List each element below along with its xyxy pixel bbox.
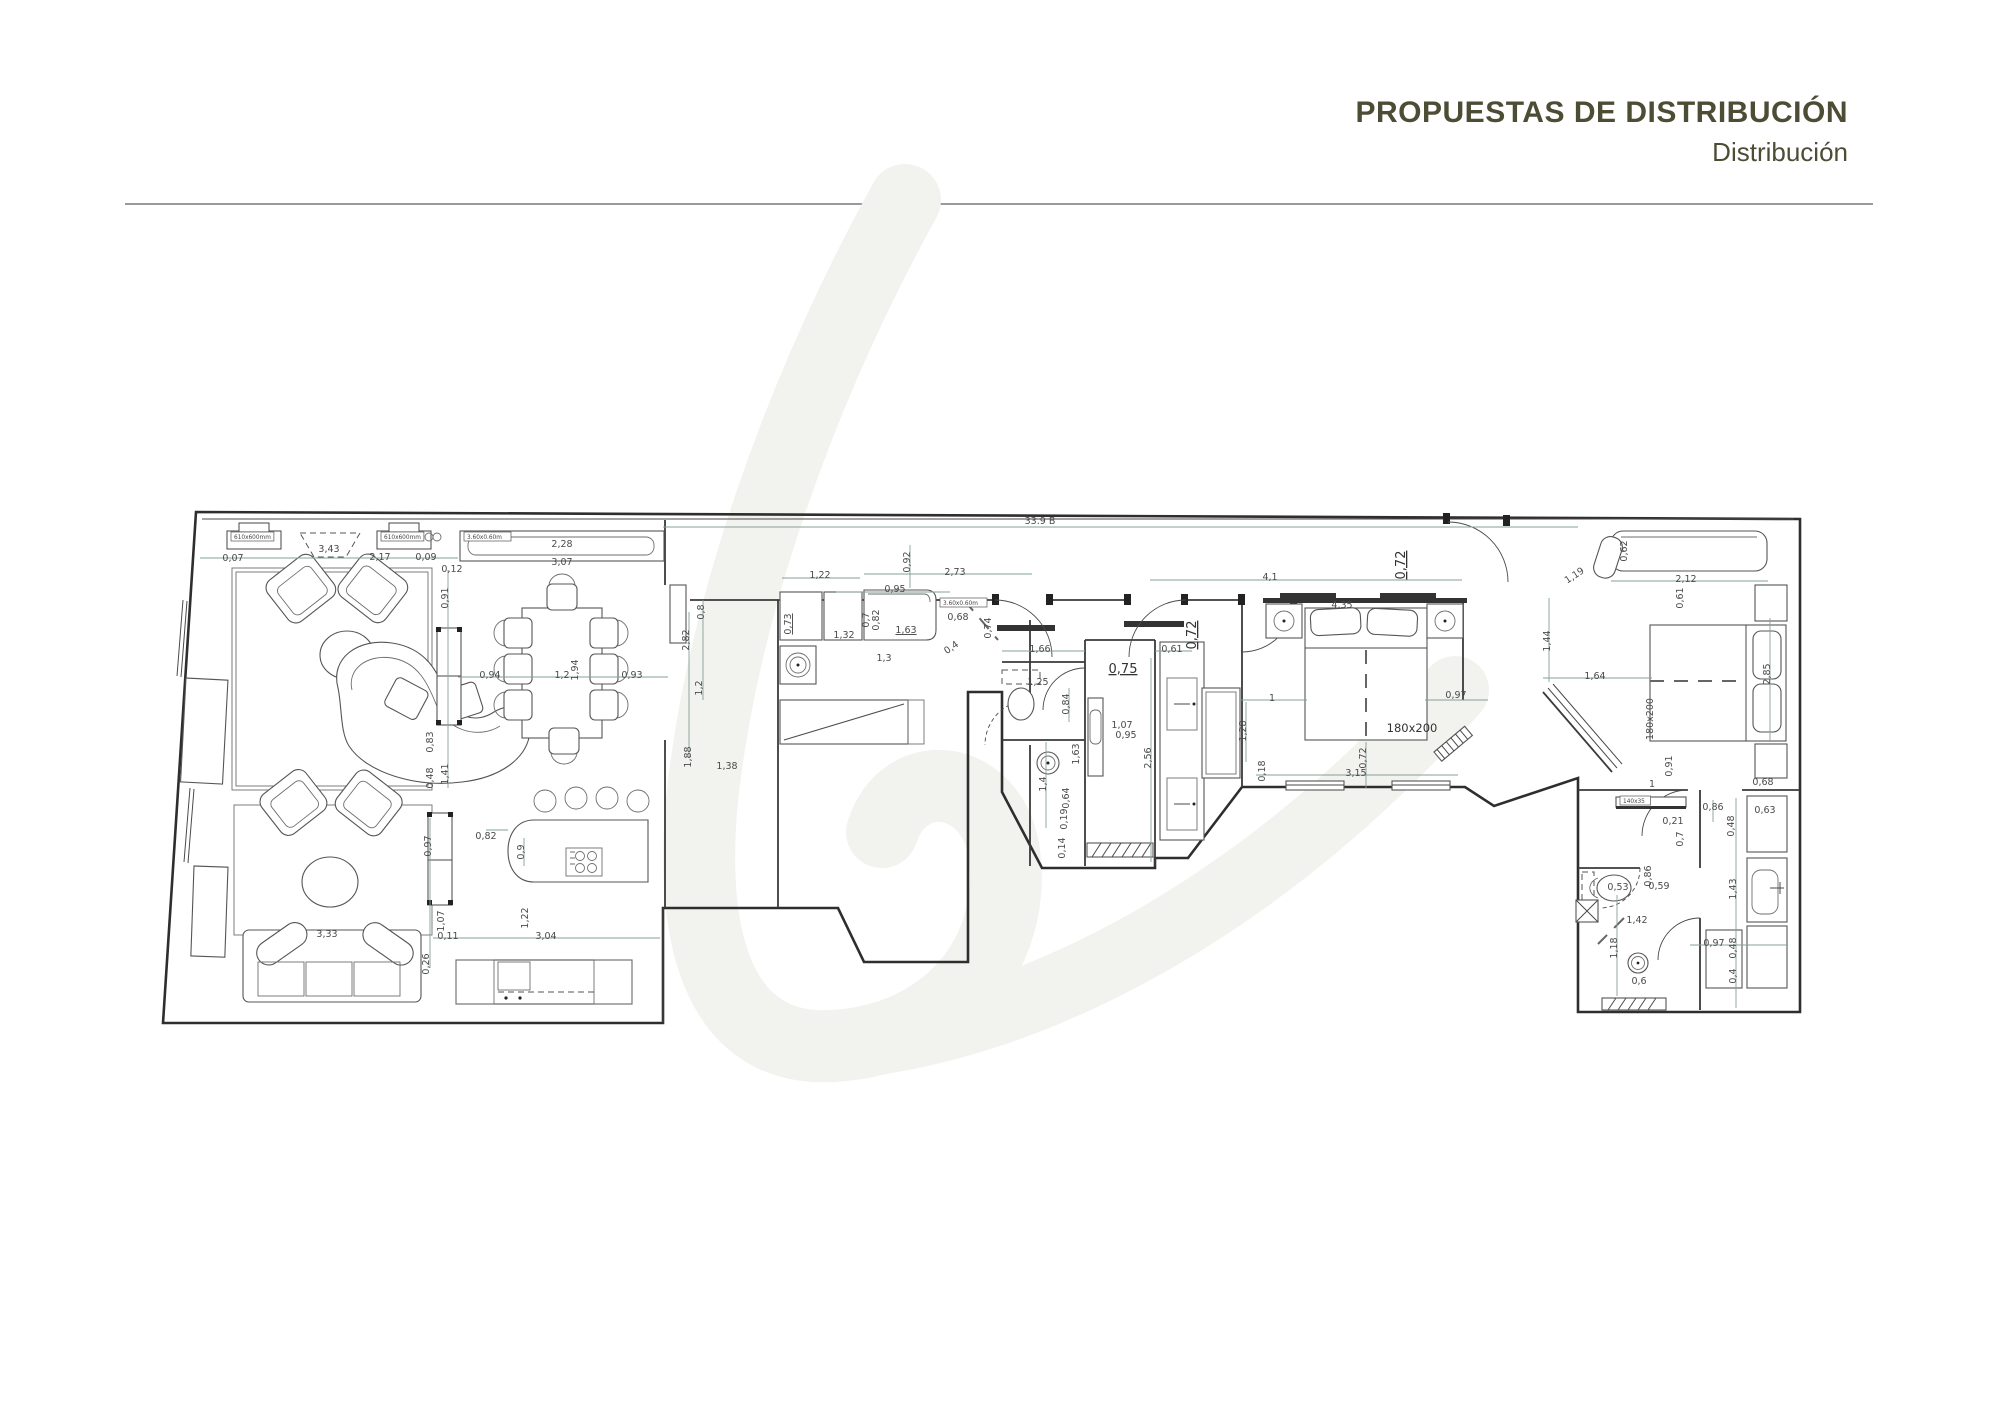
- door-sill: [1602, 998, 1666, 1010]
- dimension-label: 0,63: [1754, 805, 1775, 816]
- headboard-wall: [1263, 598, 1467, 603]
- dimension-label: 1,19: [1563, 566, 1587, 587]
- dimension-label: 0,94: [479, 670, 500, 681]
- tag-label: 3.60x0.60m: [943, 601, 978, 607]
- dimension-label: 1,2: [694, 680, 705, 695]
- armchair: [256, 766, 331, 840]
- dimension-label: 1,66: [1029, 644, 1050, 655]
- dimension-label: 0,95: [884, 584, 905, 595]
- side-cabinet: [181, 678, 228, 784]
- dimension-label: 1,22: [520, 907, 531, 928]
- vanity: [1747, 858, 1787, 922]
- dimension-label: 0,4: [1728, 968, 1739, 983]
- tag-label: 140x35: [1623, 799, 1645, 805]
- dimension-label: 0,12: [441, 564, 462, 575]
- wardrobe: [1755, 585, 1787, 621]
- dimension-label: 0,07: [222, 553, 243, 564]
- wardrobe: [1755, 744, 1787, 778]
- dimension-label: 0,18: [1257, 760, 1268, 781]
- dimension-label: 1,25: [1027, 677, 1048, 688]
- dimension-label: 0,97: [423, 835, 434, 856]
- dimension-label: 0,64: [1061, 787, 1072, 808]
- door-sill: [1087, 843, 1153, 857]
- dimension-label: 1,4: [1038, 776, 1049, 791]
- dimension-label: 0,26: [421, 953, 432, 974]
- dimension-label: 0,84: [1061, 693, 1072, 714]
- dimension-label: 2,12: [1675, 574, 1696, 585]
- tall-cabinet: [1160, 642, 1204, 840]
- dimension-label: 1,94: [570, 659, 581, 680]
- dimension-label: 0,82: [475, 831, 496, 842]
- dimension-label: 0,68: [947, 612, 968, 623]
- dimension-label: 2,85: [1762, 663, 1773, 684]
- dimension-label: 1,2: [554, 670, 569, 681]
- dimension-label: 0,91: [1664, 755, 1675, 776]
- dimension-label: 0,53: [1607, 882, 1628, 893]
- dimension-label: 3,07: [551, 557, 572, 568]
- dimension-label: 0,61: [1675, 587, 1686, 608]
- dimension-label: 0,73: [783, 613, 794, 634]
- dimension-label: 1,63: [1071, 743, 1082, 764]
- cabinet: [1747, 926, 1787, 988]
- dimension-label: 0,92: [902, 551, 913, 572]
- dimension-label: 1,42: [1626, 915, 1647, 926]
- tag-label: 3.60x0.60m: [467, 535, 502, 541]
- kitchen-island: [508, 787, 649, 882]
- dimension-label: 0,21: [1662, 816, 1683, 827]
- dimension-label: 0,97: [1703, 938, 1724, 949]
- dimension-label: 2,82: [681, 629, 692, 650]
- dimension-label: 180x200: [1645, 698, 1656, 740]
- dimension-label: 0,4: [942, 639, 961, 657]
- dimension-label: 1: [1269, 693, 1275, 704]
- dimension-label: 1,64: [1584, 671, 1605, 682]
- dimension-label: 2,56: [1143, 747, 1154, 768]
- page: PROPUESTAS DE DISTRIBUCIÓN Distribución: [0, 0, 2000, 1414]
- dimension-label: 0,7: [1675, 831, 1686, 846]
- dimension-label: 0,82: [871, 609, 882, 630]
- dimension-label: 4,1: [1262, 572, 1277, 583]
- stool: [627, 790, 649, 812]
- bedroom-2: [1591, 531, 1787, 778]
- dimension-label: 1,32: [833, 630, 854, 641]
- dimension-label: 0,6: [1631, 976, 1646, 987]
- dimension-label: 0,48: [425, 767, 436, 788]
- dimension-label: 1,44: [1542, 630, 1553, 651]
- dimension-label: 1,41: [440, 763, 451, 784]
- dimension-label: 1,88: [683, 746, 694, 767]
- dimension-label: 33.9 B: [1025, 516, 1056, 527]
- dimension-label: 2,28: [551, 539, 572, 550]
- dimension-label: 1,07: [436, 910, 447, 931]
- dimension-label: 0,48: [1726, 815, 1737, 836]
- dimension-label: 1,22: [809, 570, 830, 581]
- family-room: [191, 766, 649, 1004]
- nightstand: [1427, 604, 1463, 638]
- dimension-label: 0,19: [1059, 808, 1070, 829]
- tag-label: 610x600mm: [384, 535, 421, 541]
- dimension-label: 2,17: [369, 552, 390, 563]
- dimension-label: 3,43: [318, 544, 339, 555]
- armchair: [331, 766, 406, 840]
- dimension-label: 4,35: [1331, 600, 1352, 611]
- dimension-label: 0,72: [1185, 621, 1200, 650]
- nightstand: [1266, 604, 1302, 638]
- dimension-label: 1: [1649, 779, 1655, 790]
- floor-plan: 0,073,432,170,090,120,910,830,481,412,28…: [0, 0, 2000, 1414]
- side-cabinet: [191, 866, 228, 957]
- bathroom-right: [1576, 796, 1787, 1010]
- dimension-label: 180x200: [1387, 721, 1438, 735]
- dimension-label: 0,95: [1115, 730, 1136, 741]
- partition-cabinet: [436, 627, 462, 725]
- washbasin: [1628, 953, 1648, 973]
- dimension-label: 0,8: [696, 604, 707, 619]
- dimension-label: 0,14: [1057, 837, 1068, 858]
- dimension-label: 0,72: [1394, 551, 1409, 580]
- dimension-label: 1,38: [716, 761, 737, 772]
- dimension-label: 0,62: [1619, 540, 1630, 561]
- dimension-label: 1,43: [1728, 878, 1739, 899]
- counter-lower: [780, 700, 924, 744]
- stool: [596, 787, 618, 809]
- dimension-label: 0,93: [621, 670, 642, 681]
- tv-sideboard: [456, 960, 632, 1004]
- washbasin: [1037, 752, 1059, 774]
- dimension-label: 0,75: [1109, 662, 1138, 677]
- dimension-label: 0,59: [1648, 881, 1669, 892]
- dimension-label: 1,18: [1609, 937, 1620, 958]
- dimension-label: 0,74: [983, 617, 994, 638]
- vent-icon: [433, 533, 441, 541]
- dimension-label: 0,83: [425, 731, 436, 752]
- dimension-label: 0,11: [437, 931, 458, 942]
- tag-label: 610x600mm: [234, 535, 271, 541]
- sofa-curved: [337, 642, 531, 783]
- vanity: [1088, 698, 1103, 776]
- x-box: [1576, 900, 1598, 922]
- dimension-label: 3,04: [535, 931, 556, 942]
- dimension-label: 0,72: [1358, 747, 1369, 768]
- partition-cabinet: [427, 812, 453, 905]
- dimension-label: 2,73: [944, 567, 965, 578]
- dimension-label: 0,86: [1702, 802, 1723, 813]
- dimension-label: 1,63: [895, 625, 916, 636]
- dimension-label: 0,48: [1728, 937, 1739, 958]
- dimension-label: 0,09: [415, 552, 436, 563]
- kitchen-sink: [780, 646, 816, 684]
- dimension-label: 1,28: [1238, 720, 1249, 741]
- dimension-label: 0,9: [516, 844, 527, 859]
- dimension-label: 0,61: [1161, 644, 1182, 655]
- dimension-label: 0,91: [440, 587, 451, 608]
- stool: [534, 790, 556, 812]
- dimension-label: 3,15: [1345, 768, 1366, 779]
- wardrobe: [1202, 688, 1240, 778]
- dimension-label: 0,68: [1752, 777, 1773, 788]
- dimension-label: 3,33: [316, 929, 337, 940]
- stool: [565, 787, 587, 809]
- coffee-table: [302, 857, 358, 907]
- armchair: [262, 550, 340, 627]
- dimension-label: 0,97: [1445, 690, 1466, 701]
- dimension-label: 1,3: [876, 653, 891, 664]
